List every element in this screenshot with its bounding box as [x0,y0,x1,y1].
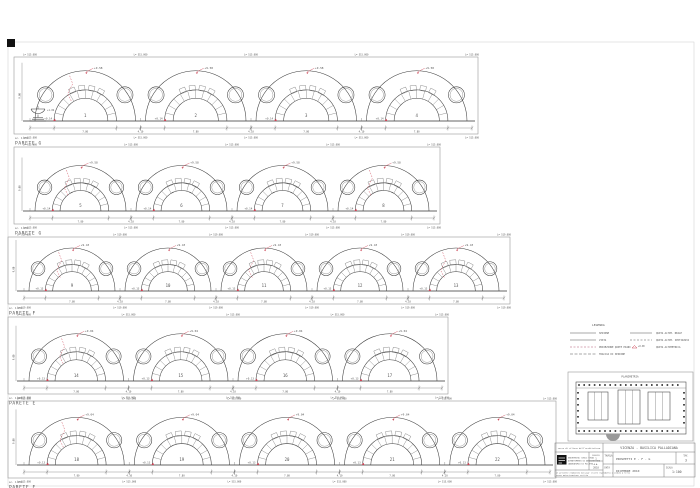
gap-dim: 4.10 [337,475,343,478]
base-arrow [332,289,335,291]
registration-mark [7,39,15,47]
top-dim: L= 515.000 [23,144,37,147]
voussoir-joint [98,197,105,201]
voussoir-joint [49,278,55,282]
legend-title: LEGENDA [592,323,605,327]
bottom-dim: L= 515.000 [326,227,340,230]
base-elevation: +0.14 [376,117,384,121]
oculus [369,87,385,103]
bottom-dim: L= 519.000 [497,307,511,310]
voussoir-joint [238,284,245,286]
top-dim: L= 515.000 [23,54,37,57]
voussoir-joint [364,191,369,196]
oculus [211,349,226,364]
voussoir-joint [174,436,176,444]
voussoir-joint [97,457,105,459]
apex-arrow [182,419,184,421]
voussoir-joint [365,265,367,272]
voussoir-joint [161,444,167,450]
plan-column [620,384,622,386]
voussoir-joint [51,366,58,370]
voussoir-joint [276,113,284,115]
voussoir-joint [403,439,407,446]
oculus [210,180,225,195]
voussoir-joint [403,204,410,206]
plan-column [677,430,679,432]
voussoir-joint [91,360,97,366]
top-dim: L= 515.000 [427,144,441,147]
oculus [195,262,209,276]
voussoir-joint [245,272,250,277]
voussoir-joint [401,197,408,201]
voussoir-joint [298,439,302,446]
apex-arrow [85,72,87,74]
voussoir-joint [353,265,355,272]
plan-column [656,430,658,432]
base-elevation: +0.13 [37,377,45,381]
bottom-dim: L= 515.000 [427,227,441,230]
gap-dim: 4.10 [335,391,341,394]
voussoir-joint [48,457,56,459]
legend-entry-label: TRACCIA DI SEZIONE [599,353,625,356]
project-title: VICENZA - BASILICA PALLADIANA [620,446,678,450]
voussoir-joint [166,356,170,363]
oculus [347,433,362,448]
plan-column [604,384,606,386]
voussoir-joint [155,268,159,274]
voussoir-joint [193,439,197,446]
base-arrow [359,379,362,381]
cell-aa-value: 2010 [593,467,599,470]
apex-elevation: +9.58 [291,161,300,165]
bottom-dim: L= 519.000 [305,307,319,310]
span-dim: 7.80 [303,131,309,134]
oculus [37,180,52,195]
voussoir-joint [379,284,386,286]
plan-column [577,410,579,412]
plan-column [609,384,611,386]
base-elevation: +0.14 [155,117,163,121]
voussoir-joint [55,113,63,115]
voussoir-joint [174,99,180,105]
legend-entry-label: PROIEZIONE QUOTE PIANI [599,346,631,349]
keystone-block [267,180,274,187]
voussoir-joint [297,191,302,196]
span-dim: 7.80 [280,221,286,224]
keystone-block [345,261,352,268]
apex-arrow [72,249,74,251]
voussoir-joint [167,439,171,446]
top-dim: L= 519.000 [209,234,223,237]
bay-number: 19 [179,457,184,462]
top-dim: L= 515.000 [465,54,479,57]
key-plan: PLANIMETRIA [568,372,693,441]
oculus [452,433,467,448]
gap-dim: 4.10 [359,131,365,134]
voussoir-joint [82,436,84,444]
bay-number: 5 [79,203,82,208]
bottom-dim: L= 515.000 [438,481,452,484]
apex-elevation: +9.04 [296,412,305,416]
org-line-3: LABORATORIO DI RILIEVO [568,463,594,466]
voussoir-joint [278,272,283,277]
bottom-dim: L= 519.000 [113,307,127,310]
plan-column [646,384,648,386]
plan-column [578,430,580,432]
apex-arrow [168,249,170,251]
voussoir-joint [428,94,432,101]
plan-column [594,430,596,432]
base-elevation: +0.14 [244,207,252,211]
plan-column [651,430,653,432]
voussoir-arch-inner [149,272,188,291]
voussoir-joint [371,444,377,450]
voussoir-joint [197,444,203,450]
voussoir-joint [162,191,167,196]
voussoir-joint [82,268,86,274]
left-dim: 9.00 [13,438,16,444]
span-dim: 7.80 [282,391,288,394]
apex-elevation: +9.43 [273,243,282,247]
oculus [387,262,401,276]
base-arrow [46,463,49,465]
elevation-row: 9.0014+9.04+0.137.8015+9.04+0.137.804.10… [8,314,450,407]
voussoir-joint [401,94,405,101]
span-dim: 7.80 [453,301,459,304]
bay-number: 9 [71,283,74,288]
voussoir-joint [470,272,475,277]
base-arrow [53,119,56,121]
span-dim: 7.80 [82,131,88,134]
voussoir-joint [69,353,71,361]
top-dim: L= 515.000 [17,398,31,401]
base-elevation: +0.14 [143,207,151,211]
apex-arrow [360,249,362,251]
span-dim: 7.80 [357,301,363,304]
oculus [38,87,54,103]
voussoir-joint [475,284,482,286]
voussoir-joint [63,99,69,105]
voussoir-joint [260,366,267,370]
apex-elevation: +9.04 [399,329,408,333]
base-arrow [46,379,49,381]
top-dim: L= 519.000 [17,234,31,237]
oculus [223,262,237,276]
span-dim: 7.80 [284,475,290,478]
base-elevation: +0.14 [42,207,50,211]
voussoir-joint [202,457,210,459]
span-dim: 7.80 [69,301,75,304]
voussoir-joint [187,184,189,191]
top-dim: L= 515.000 [543,398,557,401]
apex-elevation: +9.58 [190,161,199,165]
oculus [31,262,45,276]
scala-value: 1:100 [672,470,682,474]
voussoir-joint [436,105,443,109]
voussoir-joint [268,187,272,194]
voussoir-joint [258,457,266,459]
keystone-block [290,87,297,94]
voussoir-joint [46,284,53,286]
plan-column [683,404,685,406]
base-elevation: +0.13 [228,287,236,291]
span-dim: 7.80 [387,391,393,394]
top-dim: L= 519.000 [305,234,319,237]
voussoir-joint [306,450,313,454]
voussoir-arch-inner [245,272,284,291]
keystone-block [57,261,64,268]
oculus [117,87,133,103]
left-dim: 9.00 [19,92,22,98]
span-dim: 7.80 [389,475,395,478]
top-dim: L= 519.000 [497,234,511,237]
apex-arrow [181,335,183,337]
base-arrow [236,289,239,291]
gap-dim: 4.10 [213,301,219,304]
keystone-block [61,433,68,440]
bottom-dim: L= 519.000 [209,307,223,310]
voussoir-joint [255,204,262,206]
sheet-canvas: 9.001+9.58+0.147.802+9.58+0.147.804.103+… [0,0,700,488]
apex-elevation: +9.04 [191,412,200,416]
voussoir-joint [66,187,70,194]
oculus [412,180,427,195]
apex-arrow [182,167,184,169]
voussoir-joint [218,113,226,115]
row-scale-note: sc. 1:100 [9,480,23,484]
voussoir-joint [407,444,413,450]
voussoir-joint [196,360,202,366]
plan-column [672,430,674,432]
voussoir-joint [409,91,411,99]
base-elevation: +0.13 [351,377,359,381]
base-arrow [385,119,388,121]
voussoir-joint [274,268,278,274]
row-scale-note: sc. 1:100 [9,306,23,310]
row-label: PARETE E [9,485,36,488]
base-arrow [428,289,431,291]
span-dim: 7.80 [381,221,387,224]
plan-column [683,410,685,412]
bay-number: 7 [281,203,284,208]
voussoir-joint [196,191,201,196]
top-dim: L= 515.000 [134,54,148,57]
voussoir-joint [322,99,328,105]
keystone-block [269,349,276,356]
left-dim: 9.00 [19,185,22,191]
apex-elevation: +9.58 [426,66,435,70]
plan-column [630,430,632,432]
voussoir-joint [364,457,372,459]
voussoir-joint [65,265,67,272]
voussoir-joint [156,450,163,454]
voussoir-joint [461,265,463,272]
legend-entries: SEZIONEVISTAPROIEZIONE QUOTE PIANITRACCI… [570,332,690,356]
oculus [242,433,257,448]
voussoir-joint [257,265,259,272]
oculus [240,349,255,364]
apex-elevation: +9.58 [89,161,98,165]
bay-number: 1 [84,113,87,118]
plan-column [577,422,579,424]
oculus [422,433,437,448]
plan-column [672,384,674,386]
voussoir-joint [263,191,268,196]
voussoir-joint [516,450,523,454]
voussoir-joint [272,439,276,446]
gap-dim: 4.10 [126,475,132,478]
base-elevation: +0.13 [37,461,45,465]
elevation-rows: 9.001+9.58+0.147.802+9.58+0.147.804.103+… [8,54,558,488]
bay-number: 14 [74,373,79,378]
legend: LEGENDA SEZIONEVISTAPROIEZIONE QUOTE PIA… [570,323,690,356]
bay-number: 21 [390,457,395,462]
gap-dim: 4.10 [309,301,315,304]
voussoir-joint [503,436,505,444]
voussoir-joint [95,191,100,196]
gap-dim: 4.10 [405,301,411,304]
voussoir-joint [95,366,102,370]
voussoir-joint [155,366,162,370]
voussoir-joint [200,450,207,454]
elevation-row: 9.0018+9.04+0.137.8019+9.04+0.137.804.10… [8,398,558,488]
voussoir-joint [86,184,88,191]
top-dim: L= 515.000 [122,398,136,401]
voussoir-joint [298,91,300,99]
bottom-dim: L= 515.000 [244,137,258,140]
plan-column [651,384,653,386]
voussoir-joint [69,436,71,444]
voussoir-joint [279,105,286,109]
bottom-dim: L= 515.000 [543,481,557,484]
plan-column [577,392,579,394]
bottom-dim: L= 515.000 [122,481,136,484]
elevation-row: 9.009+9.43+0.137.8010+9.43+0.137.804.101… [8,234,512,317]
voussoir-joint [97,373,105,375]
voussoir-joint [107,113,115,115]
base-arrow [256,463,259,465]
oculus [212,433,227,448]
voussoir-joint [279,436,281,444]
voussoir-joint [483,439,487,446]
voussoir-joint [433,99,439,105]
base-elevation: +0.13 [132,287,140,291]
keystone-block [179,87,186,94]
base-elevation: +0.13 [324,287,332,291]
top-dim: L= 515.000 [435,314,449,317]
voussoir-joint [334,284,341,286]
voussoir-joint [377,278,383,282]
top-dim: L= 515.000 [17,314,31,317]
bay-number: 4 [416,113,419,118]
gap-dim: 4.10 [442,475,448,478]
keystone-block [374,349,381,356]
voussoir-joint [304,366,311,370]
voussoir-joint [318,94,322,101]
bottom-dim: L= 515.000 [124,227,138,230]
bottom-dim: L= 519.000 [401,307,415,310]
drawing-title: PROSPETTI E - F - G [616,457,651,461]
oculus [319,262,333,276]
voussoir-joint [337,278,343,282]
base-arrow [164,119,167,121]
plan-column [599,430,601,432]
voussoir-joint [92,444,98,450]
voussoir-joint [364,366,371,370]
oculus [483,262,497,276]
plan-column [661,430,663,432]
voussoir-joint [51,450,58,454]
plan-court [588,392,608,420]
voussoir-joint [312,91,314,99]
voussoir-joint [387,113,395,115]
voussoir-joint [284,99,290,105]
tav-no: 3 [685,459,687,463]
plan-column [589,430,591,432]
plan-column [577,398,579,400]
keystone-block [441,261,448,268]
voussoir-joint [174,184,176,191]
keystone-block [165,349,172,356]
left-dim: 9.00 [13,354,16,360]
voussoir-joint [369,187,373,194]
oculus [136,349,151,364]
bottom-dim: L= 515.000 [134,137,148,140]
crack-line [367,170,372,196]
plan-column [661,384,663,386]
top-dim: L= 515.000 [331,314,345,317]
left-dim: 9.00 [13,266,16,272]
voussoir-joint [477,444,483,450]
voussoir-joint [89,278,95,282]
voussoir-joint [53,204,60,206]
voussoir-joint [302,204,309,206]
plan-column [594,384,596,386]
row-frame [14,147,440,224]
voussoir-joint [56,197,63,201]
top-dim: L= 515.000 [225,144,239,147]
voussoir-joint [142,284,149,286]
voussoir-joint [157,197,164,201]
voussoir-joint [369,360,375,366]
voussoir-joint [180,94,184,101]
voussoir-joint [166,113,174,115]
voussoir-joint [77,265,79,272]
voussoir-joint [86,272,91,277]
legend-entry-label: QUOTA ALTIM. REALE [656,332,682,335]
keystone-block [192,181,200,188]
voussoir-joint [283,284,290,286]
crack-line [249,252,254,278]
oculus [107,433,122,448]
org-line-1: UNIVERSITA' DEGLI STUDI [568,457,594,460]
base-arrow [467,463,470,465]
oculus [31,433,46,448]
span-dim: 7.80 [193,131,199,134]
voussoir-joint [48,373,56,375]
voussoir-joint [199,197,206,201]
voussoir-joint [188,91,190,99]
bay-number: 12 [358,283,363,288]
oculus [259,87,275,103]
span-dim: 7.80 [179,221,185,224]
oculus [148,87,164,103]
voussoir-joint [347,268,351,274]
voussoir-joint [341,272,346,277]
voussoir-joint [433,278,439,282]
oculus [137,433,152,448]
drawing-sheet: 9.001+9.58+0.147.802+9.58+0.147.804.103+… [0,0,700,488]
